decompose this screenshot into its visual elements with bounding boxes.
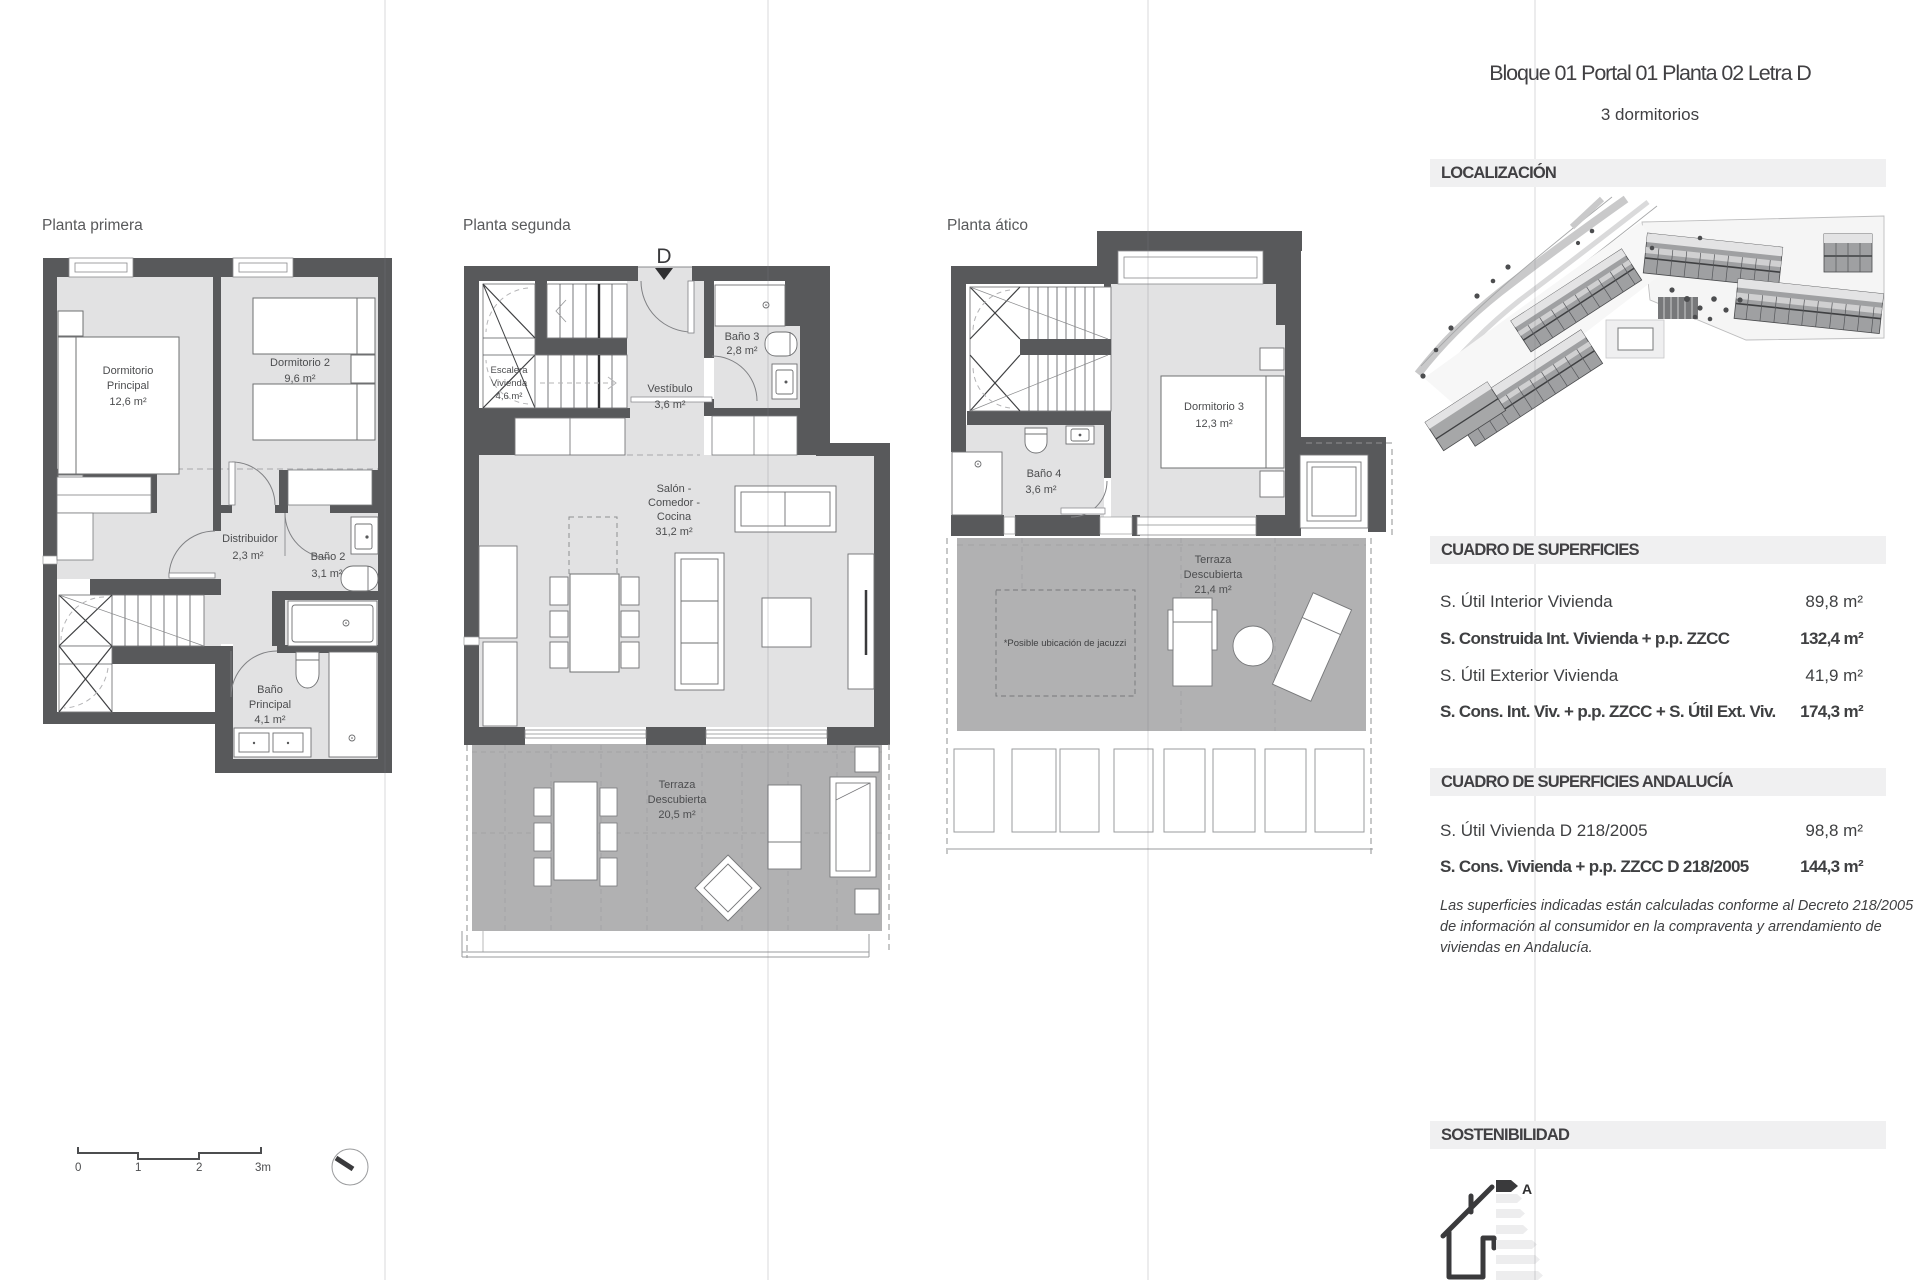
svg-text:Baño 2: Baño 2	[311, 551, 346, 563]
svg-text:4,6 m²: 4,6 m²	[496, 391, 523, 402]
svg-text:Escalera: Escalera	[491, 365, 529, 376]
svg-text:Planta segunda: Planta segunda	[463, 217, 571, 234]
svg-text:20,5 m²: 20,5 m²	[658, 809, 696, 821]
svg-text:Baño 4: Baño 4	[1027, 468, 1062, 480]
svg-text:Planta primera: Planta primera	[42, 217, 143, 234]
svg-text:Vivienda: Vivienda	[491, 378, 528, 389]
svg-text:31,2 m²: 31,2 m²	[655, 526, 693, 538]
svg-text:3,6 m²: 3,6 m²	[654, 399, 686, 411]
svg-text:2,8 m²: 2,8 m²	[726, 345, 758, 357]
svg-text:Cocina: Cocina	[657, 511, 692, 523]
svg-text:2: 2	[196, 1162, 202, 1174]
svg-text:9,6 m²: 9,6 m²	[284, 373, 316, 385]
svg-text:Baño: Baño	[257, 684, 283, 696]
svg-text:D: D	[656, 245, 671, 268]
svg-text:3m: 3m	[255, 1162, 271, 1174]
svg-text:Descubierta: Descubierta	[1184, 569, 1244, 581]
svg-text:3,1 m²: 3,1 m²	[311, 568, 343, 580]
svg-text:12,6 m²: 12,6 m²	[109, 396, 147, 408]
svg-text:Dormitorio 2: Dormitorio 2	[270, 357, 330, 369]
svg-text:Planta ático: Planta ático	[947, 217, 1028, 234]
svg-text:Comedor -: Comedor -	[648, 497, 700, 509]
svg-text:Distribuidor: Distribuidor	[222, 533, 278, 545]
svg-text:21,4 m²: 21,4 m²	[1194, 584, 1232, 596]
svg-text:0: 0	[75, 1162, 81, 1174]
svg-text:Terraza: Terraza	[1195, 554, 1233, 566]
svg-text:Baño 3: Baño 3	[725, 331, 760, 343]
svg-text:Dormitorio 3: Dormitorio 3	[1184, 401, 1244, 413]
svg-text:Terraza: Terraza	[659, 779, 697, 791]
svg-text:12,3 m²: 12,3 m²	[1195, 418, 1233, 430]
svg-text:Salón -: Salón -	[657, 483, 692, 495]
svg-text:1: 1	[135, 1162, 141, 1174]
svg-text:3,6 m²: 3,6 m²	[1025, 484, 1057, 496]
svg-text:A: A	[1522, 1181, 1532, 1197]
svg-text:Vestíbulo: Vestíbulo	[647, 383, 692, 395]
svg-text:4,1 m²: 4,1 m²	[254, 714, 286, 726]
svg-text:Descubierta: Descubierta	[648, 794, 708, 806]
svg-text:2,3 m²: 2,3 m²	[232, 550, 264, 562]
svg-text:Dormitorio: Dormitorio	[103, 365, 154, 377]
svg-text:*Posible ubicación de jacuzzi: *Posible ubicación de jacuzzi	[1004, 638, 1127, 649]
svg-text:Principal: Principal	[249, 699, 291, 711]
svg-text:Principal: Principal	[107, 380, 149, 392]
